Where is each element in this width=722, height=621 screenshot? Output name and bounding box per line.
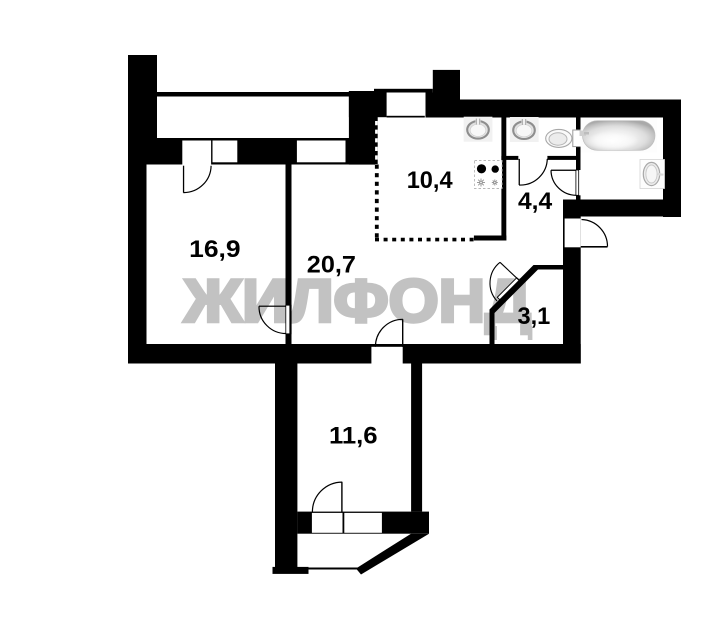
svg-text:ЖИЛФОНД: ЖИЛФОНД <box>183 268 531 335</box>
svg-text:11,6: 11,6 <box>329 423 378 450</box>
svg-text:10,4: 10,4 <box>407 167 453 194</box>
svg-text:16,9: 16,9 <box>189 236 240 263</box>
svg-text:4,4: 4,4 <box>518 188 553 215</box>
svg-text:20,7: 20,7 <box>307 252 356 279</box>
svg-text:3,1: 3,1 <box>518 303 551 330</box>
